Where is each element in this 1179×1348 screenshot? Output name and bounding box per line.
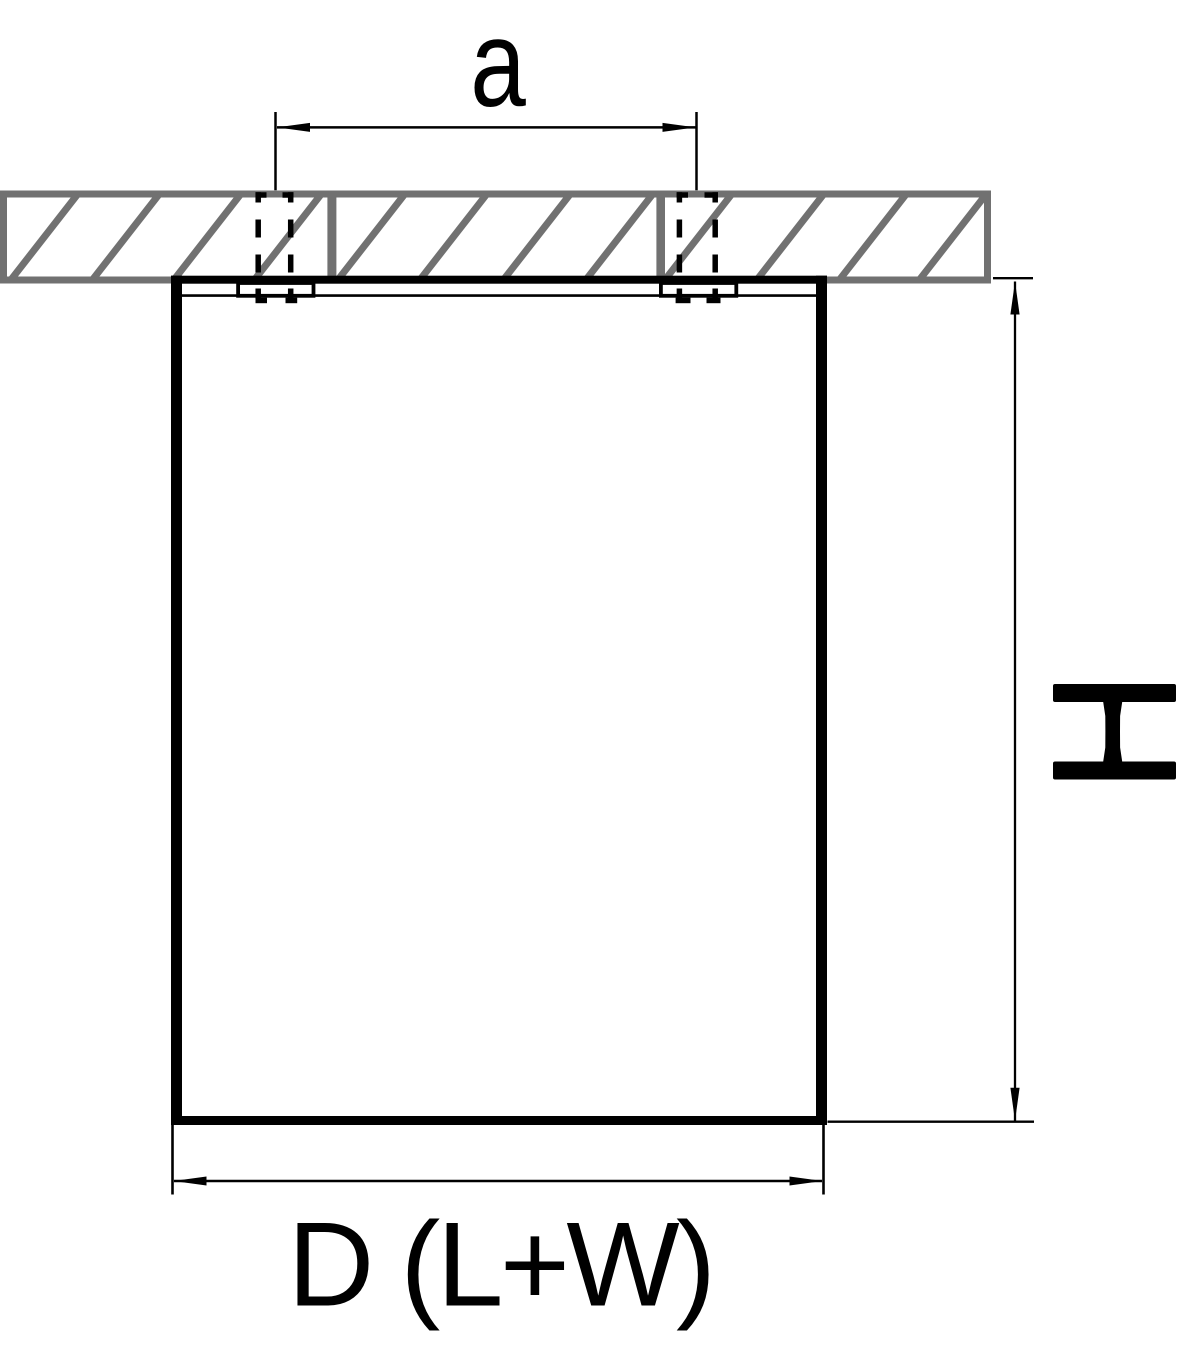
svg-text:a: a <box>470 0 526 132</box>
svg-text:D (L+W): D (L+W) <box>288 1198 713 1332</box>
